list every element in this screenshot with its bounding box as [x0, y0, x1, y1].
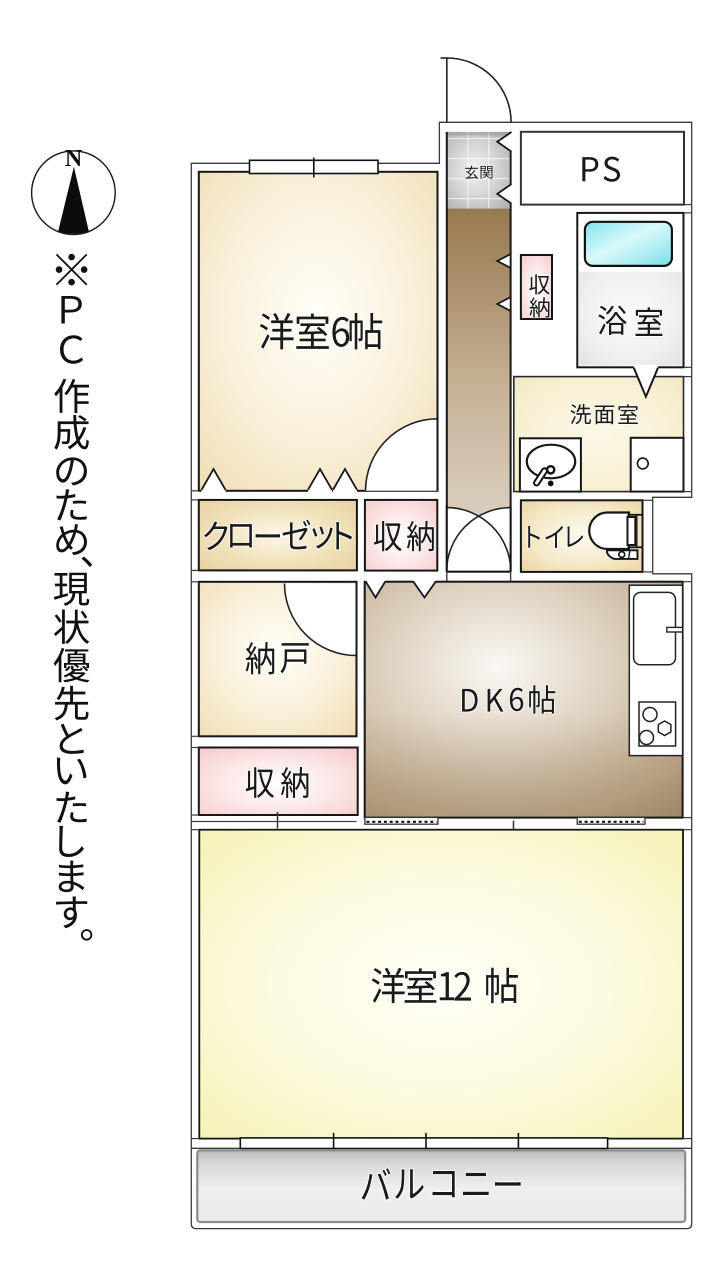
svg-text:N: N [65, 146, 83, 172]
